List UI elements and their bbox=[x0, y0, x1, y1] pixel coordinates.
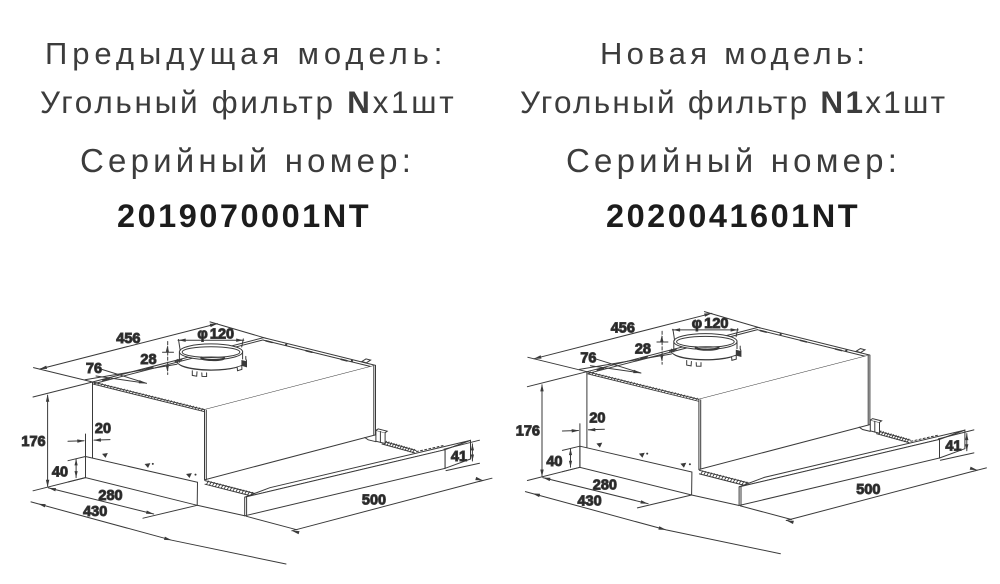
svg-text:41: 41 bbox=[451, 449, 467, 465]
svg-text:280: 280 bbox=[98, 488, 122, 504]
svg-text:28: 28 bbox=[140, 352, 156, 368]
svg-text:456: 456 bbox=[116, 331, 140, 347]
svg-text:76: 76 bbox=[86, 361, 102, 377]
svg-text:430: 430 bbox=[83, 504, 107, 520]
svg-text:20: 20 bbox=[95, 421, 111, 437]
svg-text:φ: φ bbox=[197, 327, 207, 343]
svg-text:120: 120 bbox=[210, 327, 234, 343]
svg-text:40: 40 bbox=[52, 465, 68, 481]
svg-text:176: 176 bbox=[21, 434, 45, 450]
svg-text:500: 500 bbox=[362, 493, 386, 509]
